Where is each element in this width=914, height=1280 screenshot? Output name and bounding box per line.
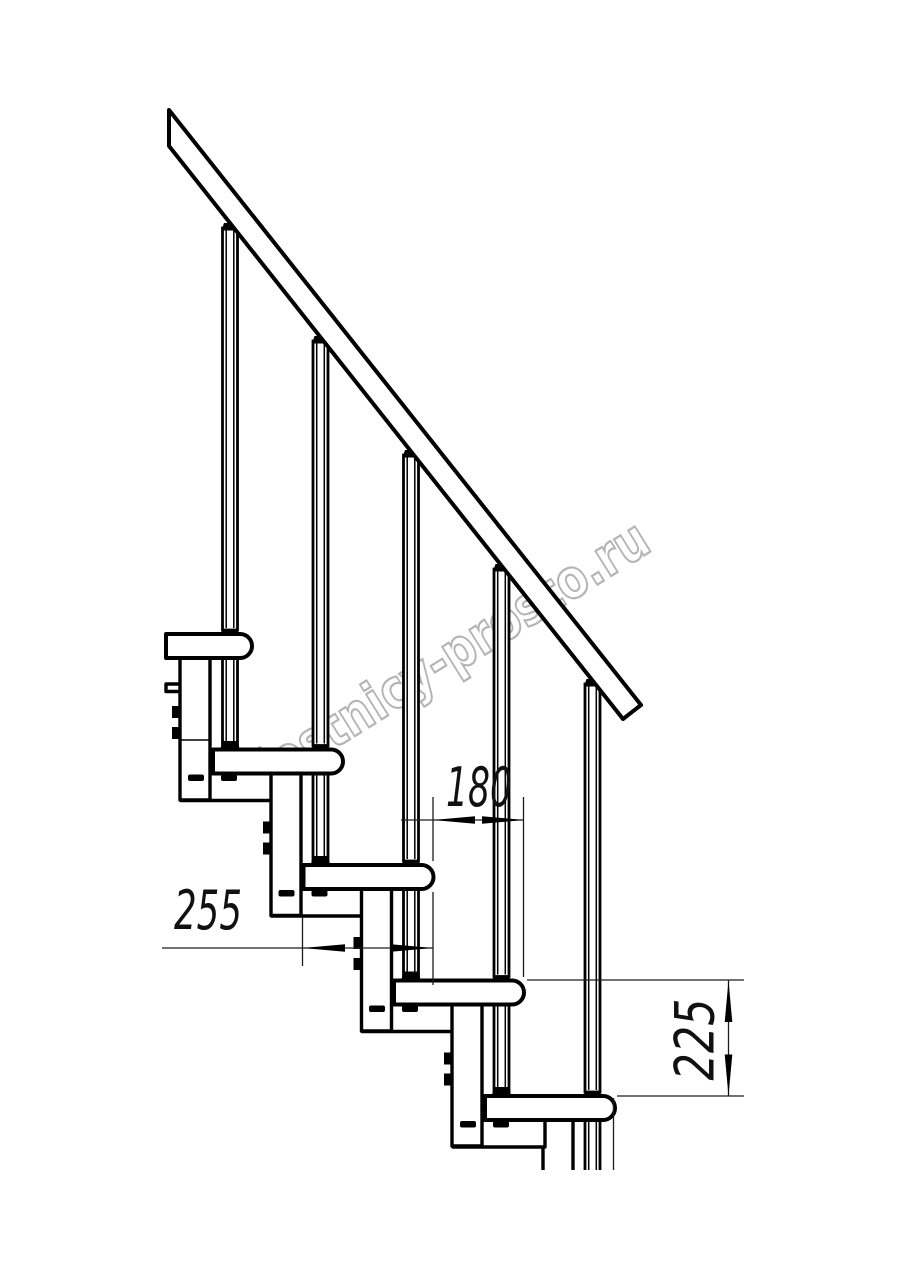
tread-4 bbox=[394, 981, 524, 1005]
tread-2 bbox=[213, 750, 343, 774]
tread-5 bbox=[485, 1096, 615, 1120]
baluster-3-upper bbox=[404, 455, 419, 861]
baluster-2-upper bbox=[313, 341, 328, 746]
tread-3 bbox=[304, 865, 434, 889]
collar-foot-3 bbox=[401, 972, 421, 982]
dimension-label-255: 255 bbox=[174, 879, 242, 942]
baluster-4-lower bbox=[494, 1003, 509, 1097]
baluster-1-lower bbox=[223, 656, 238, 750]
collar-foot-2 bbox=[311, 856, 331, 866]
drawing-canvas: lestnicy-prosto.ru bbox=[0, 0, 914, 1280]
baluster-5-upper bbox=[585, 684, 600, 1092]
dimension-label-225: 225 bbox=[664, 999, 727, 1081]
collar-foot-1 bbox=[220, 741, 240, 751]
baluster-2-lower bbox=[313, 772, 328, 866]
collar-foot-4 bbox=[492, 1087, 512, 1097]
tread-1 bbox=[166, 634, 252, 658]
baluster-1-upper bbox=[223, 228, 238, 630]
dimension-label-180: 180 bbox=[446, 756, 512, 819]
baluster-3-lower bbox=[404, 887, 419, 981]
staircase-technical-drawing: lestnicy-prosto.ru bbox=[0, 0, 914, 1280]
